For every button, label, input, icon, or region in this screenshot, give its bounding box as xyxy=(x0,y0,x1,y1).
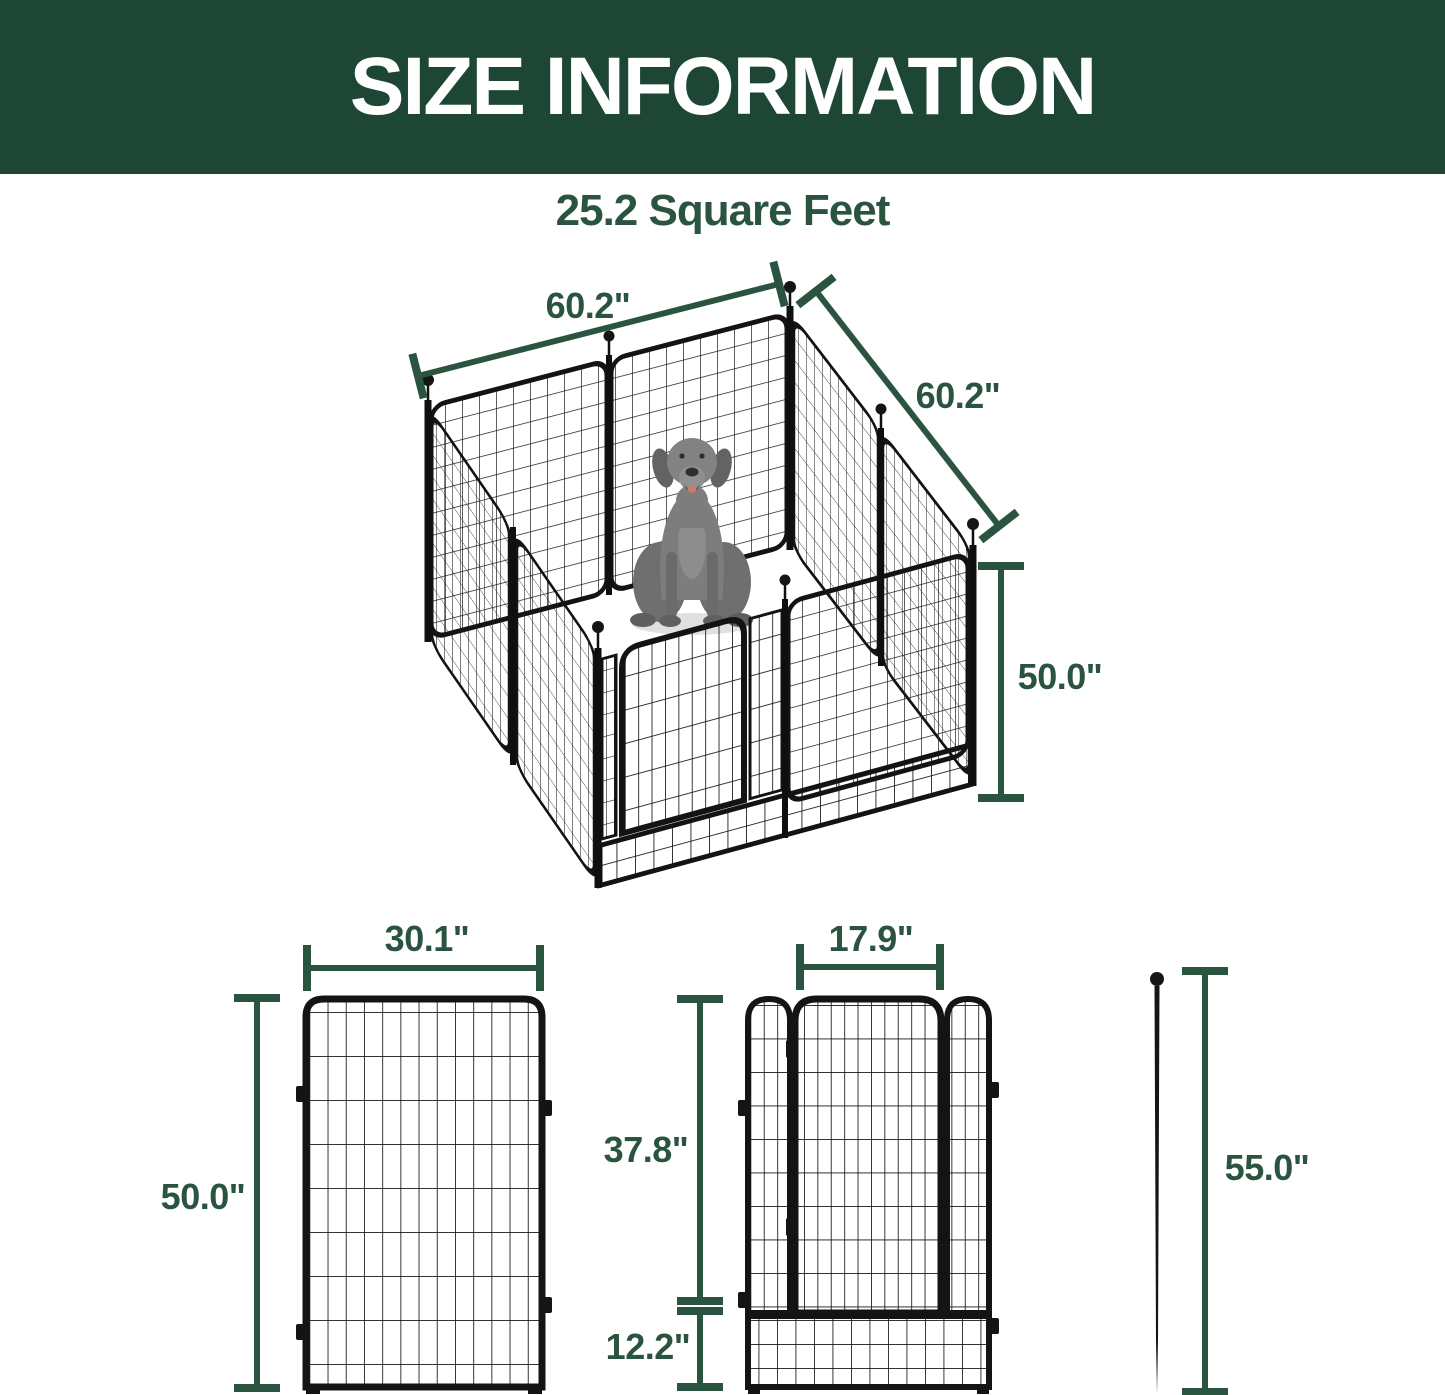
dim-label-stake-height: 55.0" xyxy=(1225,1147,1310,1189)
panel-front-view xyxy=(296,999,552,1394)
gate-bottom-strip-front xyxy=(748,1316,989,1387)
gate-panel-front-view xyxy=(738,999,999,1394)
isometric-playpen-illustration xyxy=(422,281,979,888)
gate-door-front xyxy=(795,999,941,1313)
dim-label-gate-upper-height: 37.8" xyxy=(604,1129,689,1171)
dim-label-panel-width: 30.1" xyxy=(385,918,470,960)
dim-label-gate-width: 17.9" xyxy=(829,918,914,960)
dim-label-gate-bottom-height: 12.2" xyxy=(606,1326,691,1368)
ground-stake xyxy=(1150,972,1164,1394)
pen-gate-door xyxy=(622,616,744,833)
dim-label-pen-height: 50.0" xyxy=(1018,656,1103,698)
dim-label-pen-width-left: 60.2" xyxy=(546,285,631,327)
size-information-infographic: SIZE INFORMATION 25.2 Square Feet xyxy=(0,0,1445,1395)
dim-line-stake-height xyxy=(1182,971,1228,1392)
dim-label-panel-height: 50.0" xyxy=(161,1176,246,1218)
dim-label-pen-width-right: 60.2" xyxy=(916,375,1001,417)
